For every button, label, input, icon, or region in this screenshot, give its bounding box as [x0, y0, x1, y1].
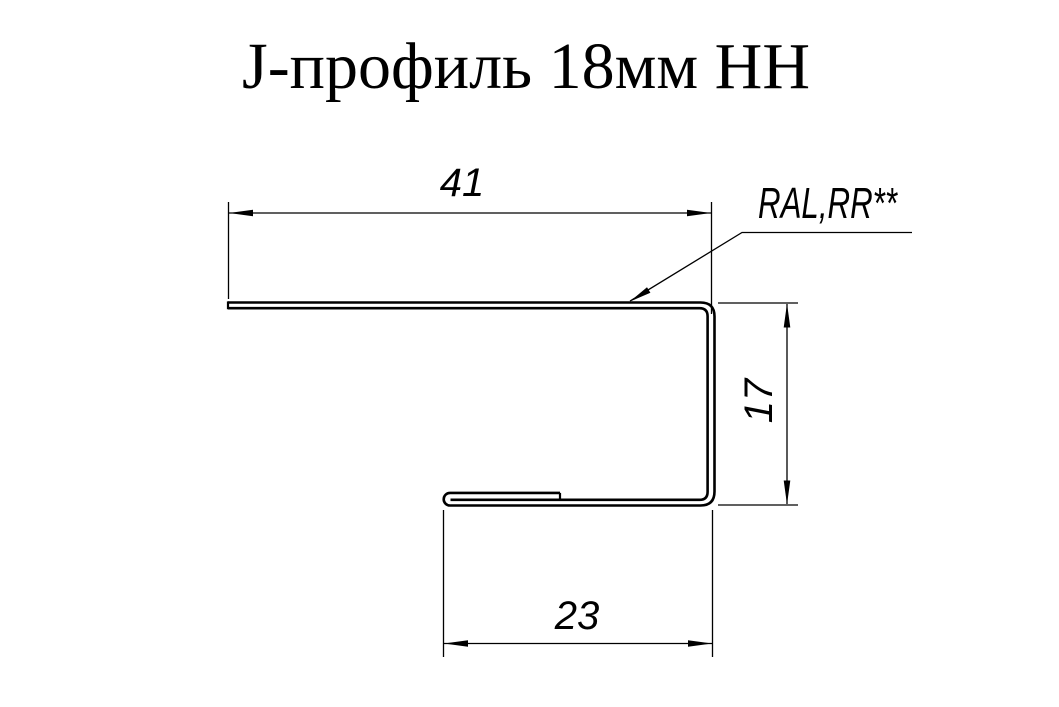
drawing-canvas: J-профиль 18мм НН 41 17	[0, 0, 1059, 707]
technical-drawing: J-профиль 18мм НН 41 17	[0, 0, 1059, 707]
leader-callout: RAL,RR**	[630, 179, 912, 302]
arrow-down-icon	[784, 481, 791, 505]
leader-arrow-icon	[630, 287, 650, 301]
dimension-right: 17	[718, 303, 798, 505]
dimension-top: 41	[229, 161, 712, 314]
profile-outline	[228, 301, 715, 505]
profile-edge-caps	[228, 301, 560, 499]
leader-label: RAL,RR**	[758, 179, 898, 228]
arrow-left-icon	[444, 640, 468, 647]
arrow-right-icon	[687, 210, 711, 217]
profile-inner-contour	[228, 308, 708, 500]
dimension-right-label: 17	[737, 377, 781, 423]
dimension-bottom: 23	[444, 510, 713, 657]
dimension-top-label: 41	[440, 161, 485, 205]
arrow-up-icon	[784, 304, 791, 328]
page-title: J-профиль 18мм НН	[242, 30, 810, 103]
arrow-left-icon	[229, 210, 253, 217]
arrow-right-icon	[688, 640, 712, 647]
profile-outer-contour	[228, 303, 715, 506]
leader-line	[630, 233, 912, 302]
dimension-bottom-label: 23	[554, 594, 600, 638]
